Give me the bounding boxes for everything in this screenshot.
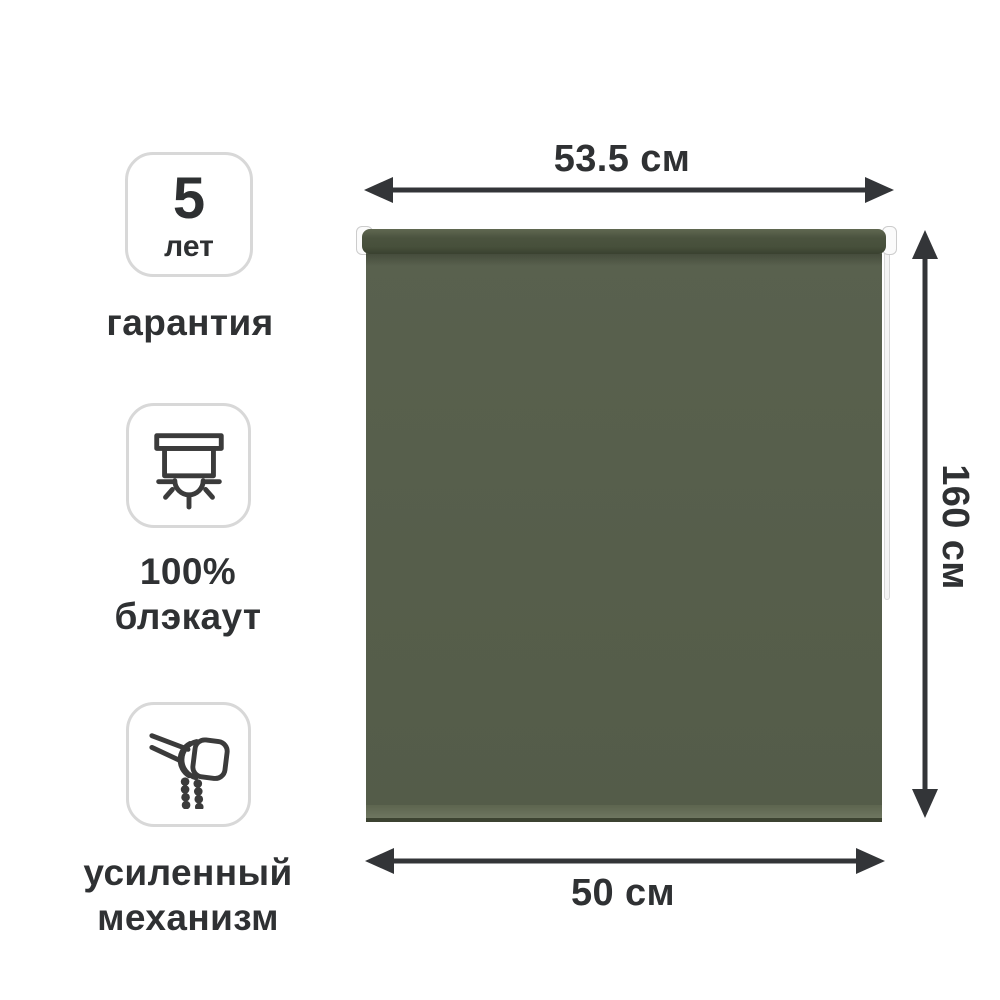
blackout-badge [126, 403, 251, 528]
pull-chain [884, 250, 890, 600]
mechanism-label-line1: усиленный [38, 850, 338, 895]
mechanism-label: усиленный механизм [38, 850, 338, 940]
blackout-label-line1: 100% [38, 549, 338, 594]
height-dimension-label: 160 см [934, 417, 976, 637]
blackout-label: 100% блэкаут [38, 549, 338, 639]
warranty-years-number: 5 [173, 170, 205, 228]
warranty-badge: 5 лет [125, 152, 253, 277]
mechanism-label-line2: механизм [38, 895, 338, 940]
top-width-dimension-arrow [362, 174, 896, 206]
roller-tube [362, 229, 886, 254]
product-dimension-infographic: 5 лет гарантия 100% блэкаут [0, 0, 1000, 1000]
warranty-label: гарантия [40, 300, 340, 345]
blackout-blind-icon [145, 422, 233, 510]
roller-mechanism-chain-icon [145, 721, 233, 809]
blind-fabric [366, 250, 882, 822]
blackout-label-line2: блэкаут [38, 594, 338, 639]
warranty-years-caption: лет [164, 230, 214, 263]
mechanism-badge [126, 702, 251, 827]
bottom-width-dimension-label: 50 см [473, 872, 773, 914]
